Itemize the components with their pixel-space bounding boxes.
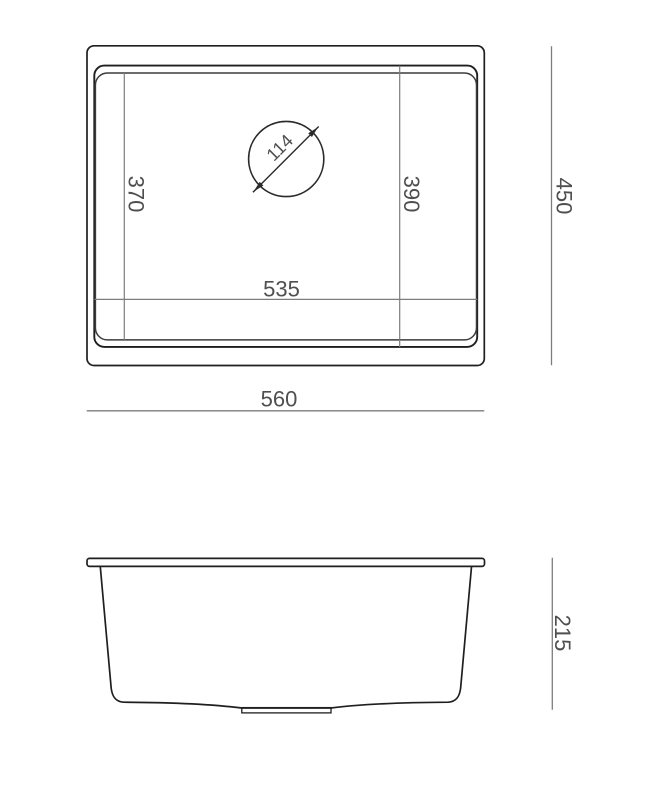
svg-text:450: 450 xyxy=(552,178,577,215)
svg-text:535: 535 xyxy=(263,276,300,301)
svg-text:114: 114 xyxy=(263,131,297,165)
svg-text:370: 370 xyxy=(124,176,149,213)
svg-text:560: 560 xyxy=(261,386,298,411)
svg-text:215: 215 xyxy=(550,615,575,652)
svg-text:390: 390 xyxy=(399,176,424,213)
